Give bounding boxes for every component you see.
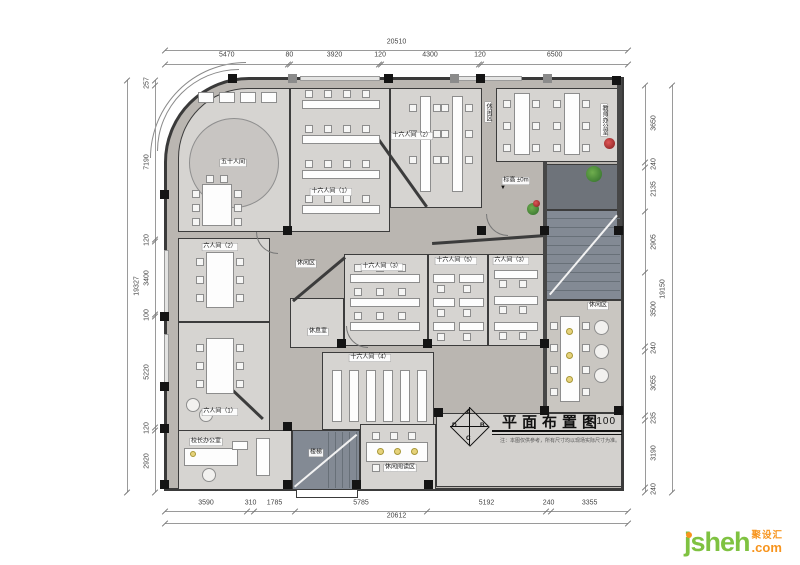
desk bbox=[494, 296, 538, 305]
chair bbox=[582, 100, 590, 108]
column bbox=[228, 74, 237, 83]
chair bbox=[437, 309, 445, 317]
chair bbox=[433, 130, 441, 138]
dim-label: 120 bbox=[144, 423, 151, 435]
dim-label: 3650 bbox=[651, 116, 658, 132]
chair bbox=[324, 160, 332, 168]
room-label: 十六人间（3） bbox=[361, 264, 402, 271]
chair bbox=[362, 90, 370, 98]
dim-label: 4300 bbox=[422, 52, 438, 59]
desk bbox=[433, 322, 455, 331]
dim-label: 7190 bbox=[144, 154, 151, 170]
column bbox=[450, 74, 459, 83]
desk bbox=[240, 92, 256, 103]
column bbox=[612, 76, 621, 85]
stair-tread bbox=[328, 432, 329, 488]
chair bbox=[305, 125, 313, 133]
room-label: 休闲阅读区 bbox=[384, 465, 416, 472]
chair bbox=[236, 276, 244, 284]
chair bbox=[441, 104, 449, 112]
dim-label: 240 bbox=[651, 343, 658, 355]
dim-label: 2905 bbox=[651, 234, 658, 250]
dim-label: 120 bbox=[144, 234, 151, 246]
chair bbox=[463, 285, 471, 293]
chair bbox=[236, 258, 244, 266]
chair bbox=[354, 312, 362, 320]
column bbox=[160, 190, 169, 199]
chair bbox=[582, 322, 590, 330]
chair bbox=[206, 175, 214, 183]
desk bbox=[202, 184, 232, 226]
chair bbox=[196, 294, 204, 302]
chair bbox=[236, 380, 244, 388]
room-label: 五十人间 bbox=[220, 160, 246, 167]
room-label: 六人间（1） bbox=[202, 409, 237, 416]
room-label: 休息室 bbox=[308, 329, 328, 336]
dim-label: 19327 bbox=[134, 276, 141, 295]
stool bbox=[186, 398, 200, 412]
dim-line bbox=[165, 50, 628, 51]
chair bbox=[196, 362, 204, 370]
chair bbox=[409, 104, 417, 112]
stair-tread bbox=[547, 263, 620, 264]
dim-label: 120 bbox=[474, 52, 486, 59]
chair bbox=[550, 344, 558, 352]
plant-icon bbox=[586, 166, 602, 182]
desk bbox=[433, 274, 455, 283]
chair bbox=[519, 306, 527, 314]
chair bbox=[550, 388, 558, 396]
stair-tread bbox=[547, 218, 620, 219]
wall bbox=[617, 78, 622, 232]
chair bbox=[192, 190, 200, 198]
stair-tread bbox=[335, 432, 336, 488]
chair bbox=[463, 309, 471, 317]
desk bbox=[366, 370, 376, 422]
room-label: 休闲区 bbox=[485, 102, 491, 122]
room-label: 六人间（2） bbox=[202, 244, 237, 251]
chair bbox=[236, 344, 244, 352]
dim-tick bbox=[669, 489, 675, 495]
room-label: 六人间（3） bbox=[493, 258, 528, 265]
chair bbox=[305, 90, 313, 98]
dim-label: 19150 bbox=[660, 279, 667, 298]
desk bbox=[302, 135, 380, 144]
room-label: 休闲区 bbox=[296, 261, 316, 268]
drawing-scale: 1:100 bbox=[586, 416, 616, 427]
stool bbox=[594, 368, 609, 383]
compass-icon: A B C D bbox=[448, 405, 490, 447]
dim-line bbox=[672, 85, 673, 492]
dim-label: 3190 bbox=[651, 446, 658, 462]
window bbox=[164, 334, 169, 386]
chair bbox=[354, 288, 362, 296]
column bbox=[160, 424, 169, 433]
stair-tread bbox=[547, 236, 620, 237]
dim-label: 100 bbox=[144, 309, 151, 321]
desk bbox=[350, 274, 420, 283]
desk bbox=[383, 370, 393, 422]
dim-label: 240 bbox=[651, 158, 658, 170]
dim-label: 235 bbox=[651, 412, 658, 424]
desk bbox=[433, 298, 455, 307]
dim-line bbox=[165, 523, 628, 524]
compass-d: D bbox=[452, 422, 457, 429]
stair-tread bbox=[547, 290, 620, 291]
chair bbox=[343, 125, 351, 133]
elevation-marker-icon: ▼ bbox=[500, 185, 506, 191]
logo-text: jsheh bbox=[684, 527, 750, 557]
window bbox=[164, 250, 169, 314]
desk bbox=[350, 298, 420, 307]
room-label: 教师办公室 bbox=[601, 104, 607, 136]
logo-tld-text: .com bbox=[752, 541, 784, 554]
desk bbox=[302, 205, 380, 214]
desk bbox=[198, 92, 214, 103]
compass-c: C bbox=[466, 435, 471, 442]
chair bbox=[553, 100, 561, 108]
desk bbox=[514, 93, 530, 155]
chair bbox=[196, 258, 204, 266]
desk bbox=[494, 270, 538, 279]
column bbox=[423, 339, 432, 348]
lamp-icon bbox=[566, 328, 573, 335]
column bbox=[352, 480, 361, 489]
floor-plan: 五十人间十六人间（1）十六人间（2）休闲区教师办公室六人间（2）六人间（1）休闲… bbox=[0, 0, 800, 565]
dim-label: 5785 bbox=[353, 500, 369, 507]
desk bbox=[417, 370, 427, 422]
desk bbox=[332, 370, 342, 422]
room-label: 十六人间（5） bbox=[435, 258, 476, 265]
room-label: 休闲区 bbox=[588, 303, 608, 310]
desk bbox=[459, 322, 484, 331]
desk bbox=[256, 438, 270, 476]
lamp-icon bbox=[394, 448, 401, 455]
lounge-right bbox=[545, 300, 622, 413]
chair bbox=[305, 160, 313, 168]
chair bbox=[398, 288, 406, 296]
dim-label: 5220 bbox=[144, 364, 151, 380]
desk bbox=[206, 252, 234, 308]
dim-label: 20510 bbox=[387, 39, 406, 46]
room-label: 楼梯 bbox=[309, 450, 323, 457]
chair bbox=[532, 144, 540, 152]
lamp-icon bbox=[190, 451, 196, 457]
chair bbox=[503, 122, 511, 130]
desk bbox=[302, 100, 380, 109]
column bbox=[540, 226, 549, 235]
dim-tick bbox=[152, 489, 158, 495]
chair bbox=[376, 312, 384, 320]
column bbox=[283, 226, 292, 235]
column bbox=[614, 226, 623, 235]
window bbox=[452, 76, 522, 81]
desk bbox=[494, 322, 538, 331]
chair bbox=[519, 280, 527, 288]
chair bbox=[553, 144, 561, 152]
entry-step bbox=[296, 489, 358, 498]
chair bbox=[196, 380, 204, 388]
chair bbox=[408, 432, 416, 440]
dim-label: 5470 bbox=[219, 52, 235, 59]
desk bbox=[232, 441, 248, 450]
lamp-icon bbox=[566, 352, 573, 359]
chair bbox=[236, 294, 244, 302]
dim-tick bbox=[625, 61, 631, 67]
dim-label: 257 bbox=[144, 77, 151, 89]
chair bbox=[582, 122, 590, 130]
chair bbox=[343, 195, 351, 203]
chair bbox=[196, 344, 204, 352]
window bbox=[300, 76, 380, 81]
column bbox=[160, 480, 169, 489]
room-label: 标高 ±0m bbox=[502, 178, 529, 185]
desk bbox=[459, 298, 484, 307]
column bbox=[543, 74, 552, 83]
chair bbox=[234, 204, 242, 212]
dim-label: 80 bbox=[285, 52, 293, 59]
dim-label: 2920 bbox=[144, 453, 151, 469]
dim-label: 310 bbox=[245, 500, 257, 507]
chair bbox=[409, 156, 417, 164]
drawing-note: 注：本图仅供参考，所有尺寸均以现场实际尺寸为准。 bbox=[500, 437, 620, 444]
dim-label: 6500 bbox=[547, 52, 563, 59]
chair bbox=[499, 332, 507, 340]
stair-tread bbox=[547, 227, 620, 228]
chair bbox=[465, 130, 473, 138]
column bbox=[288, 74, 297, 83]
chair bbox=[499, 280, 507, 288]
lamp-icon bbox=[566, 376, 573, 383]
room-label: 校长办公室 bbox=[190, 439, 222, 446]
desk bbox=[350, 322, 420, 331]
chair bbox=[362, 195, 370, 203]
desk bbox=[459, 274, 484, 283]
column bbox=[160, 312, 169, 321]
dim-label: 3355 bbox=[582, 500, 598, 507]
chair bbox=[324, 90, 332, 98]
dim-label: 3500 bbox=[651, 301, 658, 317]
chair bbox=[362, 160, 370, 168]
logo-dot-icon bbox=[686, 532, 692, 538]
lamp-icon bbox=[377, 448, 384, 455]
stair-tread bbox=[547, 272, 620, 273]
chair bbox=[532, 122, 540, 130]
chair bbox=[499, 306, 507, 314]
chair bbox=[372, 464, 380, 472]
dim-tick bbox=[625, 508, 631, 514]
dim-label: 3920 bbox=[327, 52, 343, 59]
chair bbox=[582, 366, 590, 374]
dim-label: 120 bbox=[374, 52, 386, 59]
chair bbox=[437, 333, 445, 341]
chair bbox=[305, 195, 313, 203]
desk bbox=[420, 96, 431, 192]
column bbox=[540, 339, 549, 348]
column bbox=[283, 480, 292, 489]
dim-label: 5192 bbox=[479, 500, 495, 507]
dim-label: 240 bbox=[651, 484, 658, 496]
dim-label: 3590 bbox=[198, 500, 214, 507]
dim-label: 240 bbox=[543, 500, 555, 507]
chair bbox=[582, 144, 590, 152]
dim-tick bbox=[625, 520, 631, 526]
terrace bbox=[545, 164, 622, 210]
title-underline-2 bbox=[492, 434, 622, 435]
stool bbox=[594, 344, 609, 359]
room-label: 十六人间（2） bbox=[391, 133, 432, 140]
chair bbox=[433, 104, 441, 112]
dim-tick bbox=[625, 47, 631, 53]
chair bbox=[234, 218, 242, 226]
chair bbox=[465, 104, 473, 112]
dim-label: 2135 bbox=[651, 181, 658, 197]
room-rest bbox=[290, 298, 344, 348]
dim-tick bbox=[124, 489, 130, 495]
chair bbox=[441, 156, 449, 164]
desk bbox=[206, 338, 234, 394]
wall bbox=[543, 162, 547, 415]
column bbox=[384, 74, 393, 83]
chair bbox=[463, 333, 471, 341]
dim-line bbox=[165, 64, 628, 65]
stair-tread bbox=[342, 432, 343, 488]
chair bbox=[519, 332, 527, 340]
jsheh-logo[interactable]: jsheh 聚设汇 .com bbox=[684, 527, 783, 557]
chair bbox=[582, 344, 590, 352]
title-underline bbox=[492, 430, 622, 432]
chair bbox=[372, 432, 380, 440]
stool bbox=[202, 468, 216, 482]
chair bbox=[398, 312, 406, 320]
chair bbox=[324, 125, 332, 133]
chair bbox=[324, 195, 332, 203]
chair bbox=[532, 100, 540, 108]
compass-a: A bbox=[466, 409, 471, 416]
stool bbox=[594, 320, 609, 335]
dim-label: 3055 bbox=[651, 375, 658, 391]
column bbox=[283, 422, 292, 431]
plant-icon bbox=[604, 138, 615, 149]
chair bbox=[376, 288, 384, 296]
chair bbox=[433, 156, 441, 164]
dim-line bbox=[645, 85, 646, 492]
chair bbox=[343, 160, 351, 168]
column bbox=[476, 74, 485, 83]
desk bbox=[452, 96, 463, 192]
chair bbox=[503, 144, 511, 152]
dim-line bbox=[127, 80, 128, 492]
desk bbox=[564, 93, 580, 155]
column bbox=[614, 406, 623, 415]
desk bbox=[349, 370, 359, 422]
lamp-icon bbox=[411, 448, 418, 455]
chair bbox=[343, 90, 351, 98]
column bbox=[424, 480, 433, 489]
chair bbox=[550, 322, 558, 330]
chair bbox=[234, 190, 242, 198]
chair bbox=[192, 218, 200, 226]
chair bbox=[236, 362, 244, 370]
desk bbox=[219, 92, 235, 103]
dim-label: 3400 bbox=[144, 270, 151, 286]
stair-tread bbox=[547, 245, 620, 246]
chair bbox=[362, 125, 370, 133]
column bbox=[160, 382, 169, 391]
desk bbox=[261, 92, 277, 103]
chair bbox=[550, 366, 558, 374]
desk bbox=[400, 370, 410, 422]
chair bbox=[390, 432, 398, 440]
chair bbox=[196, 276, 204, 284]
compass-b: B bbox=[480, 422, 485, 429]
room-label: 十六人间（1） bbox=[310, 189, 351, 196]
column bbox=[434, 408, 443, 417]
dim-label: 20612 bbox=[387, 513, 406, 520]
plant-icon bbox=[533, 200, 540, 207]
chair bbox=[582, 388, 590, 396]
chair bbox=[192, 204, 200, 212]
chair bbox=[220, 175, 228, 183]
column bbox=[477, 226, 486, 235]
chair bbox=[553, 122, 561, 130]
chair bbox=[437, 285, 445, 293]
dim-label: 1785 bbox=[267, 500, 283, 507]
chair bbox=[503, 100, 511, 108]
room-label: 十六人间（4） bbox=[349, 355, 390, 362]
desk bbox=[302, 170, 380, 179]
chair bbox=[441, 130, 449, 138]
chair bbox=[465, 156, 473, 164]
column bbox=[337, 339, 346, 348]
